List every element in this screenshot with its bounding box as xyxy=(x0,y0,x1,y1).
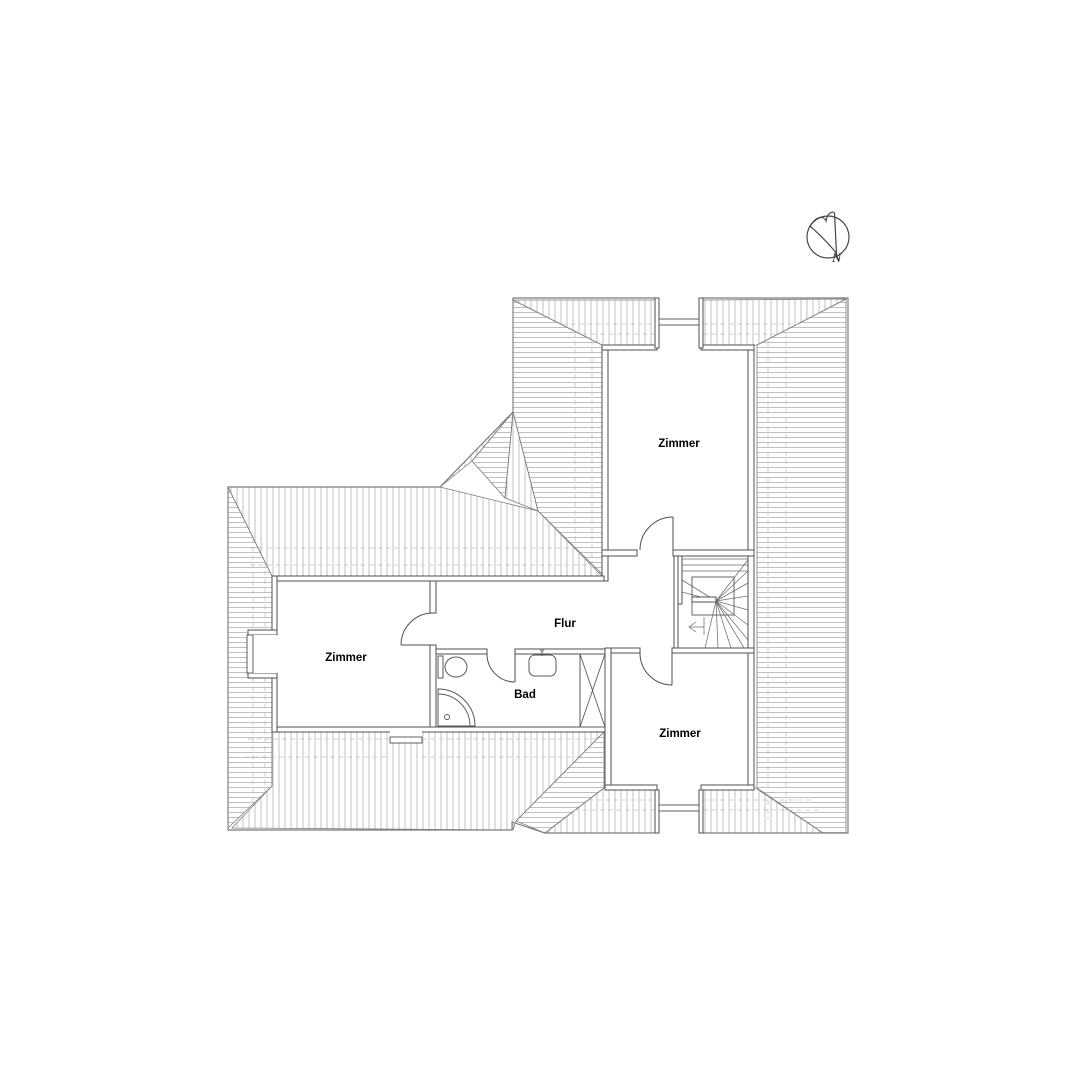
stair-handrail-vertical xyxy=(678,556,682,604)
wall-east xyxy=(748,345,754,790)
window-niche-south xyxy=(390,728,422,737)
wall-south xyxy=(277,727,611,732)
north-arrow-pointer xyxy=(810,212,837,253)
label-hallway: Flur xyxy=(554,618,576,630)
wall-room-left-east-lower xyxy=(430,645,436,727)
bathroom-fixtures xyxy=(438,649,556,726)
window-west xyxy=(247,635,253,673)
wall-window-niche-bottom xyxy=(248,673,277,678)
stair-handrail-horizontal xyxy=(692,597,716,602)
wall-room-top-south-left xyxy=(602,550,637,556)
wall-room-top-north-left xyxy=(602,345,657,350)
wall-hall-north xyxy=(272,576,604,581)
wall-window-niche-top xyxy=(248,630,277,635)
north-arrow: N xyxy=(807,212,849,265)
wall-room-top-west xyxy=(602,345,608,581)
wall-room-bottom-north-left xyxy=(611,648,640,653)
wall-room-bottom-north-right xyxy=(672,648,754,653)
wall-room-bottom-south-left xyxy=(605,785,657,790)
wall-dormer-bottom-left-jamb xyxy=(655,790,659,833)
label-room-bottom: Zimmer xyxy=(659,728,701,740)
wall-room-left-east-upper xyxy=(430,581,436,613)
door-bathroom xyxy=(487,654,515,682)
wall-room-bottom-south-right xyxy=(701,785,754,790)
window-bottom-dormer xyxy=(659,805,699,811)
wall-stair-west xyxy=(674,556,678,648)
label-room-top: Zimmer xyxy=(658,438,700,450)
toilet xyxy=(438,656,467,678)
roof-plane-east xyxy=(757,299,846,833)
door-room-bottom xyxy=(640,653,672,685)
label-room-left: Zimmer xyxy=(325,652,367,664)
wall-room-bottom-west xyxy=(605,648,611,788)
north-arrow-label: N xyxy=(831,250,842,265)
chimney-shaft xyxy=(580,654,605,727)
wall-bath-north-left xyxy=(436,649,487,654)
wall-room-top-south-right xyxy=(673,550,754,556)
door-room-left xyxy=(401,613,433,645)
wall-dormer-top-left-jamb xyxy=(655,298,659,348)
wall-dormer-top-right-jamb xyxy=(699,298,703,348)
wall-room-top-north-right xyxy=(701,345,754,350)
stair-direction-arrow xyxy=(689,617,704,635)
wall-room-left-west-upper xyxy=(272,576,277,635)
door-room-top xyxy=(640,517,673,550)
window-top-dormer xyxy=(659,319,699,325)
staircase xyxy=(678,556,748,648)
window-south xyxy=(390,737,422,743)
shower xyxy=(438,689,475,726)
wall-room-left-west-lower xyxy=(272,673,277,732)
label-bathroom: Bad xyxy=(514,689,536,701)
wall-dormer-bottom-right-jamb xyxy=(699,790,703,833)
floor-plan-drawing: Zimmer Zimmer Zimmer Flur Bad N xyxy=(0,0,1080,1080)
wall-bath-north-right xyxy=(515,649,611,654)
floor-plan-canvas: Zimmer Zimmer Zimmer Flur Bad N xyxy=(0,0,1080,1080)
